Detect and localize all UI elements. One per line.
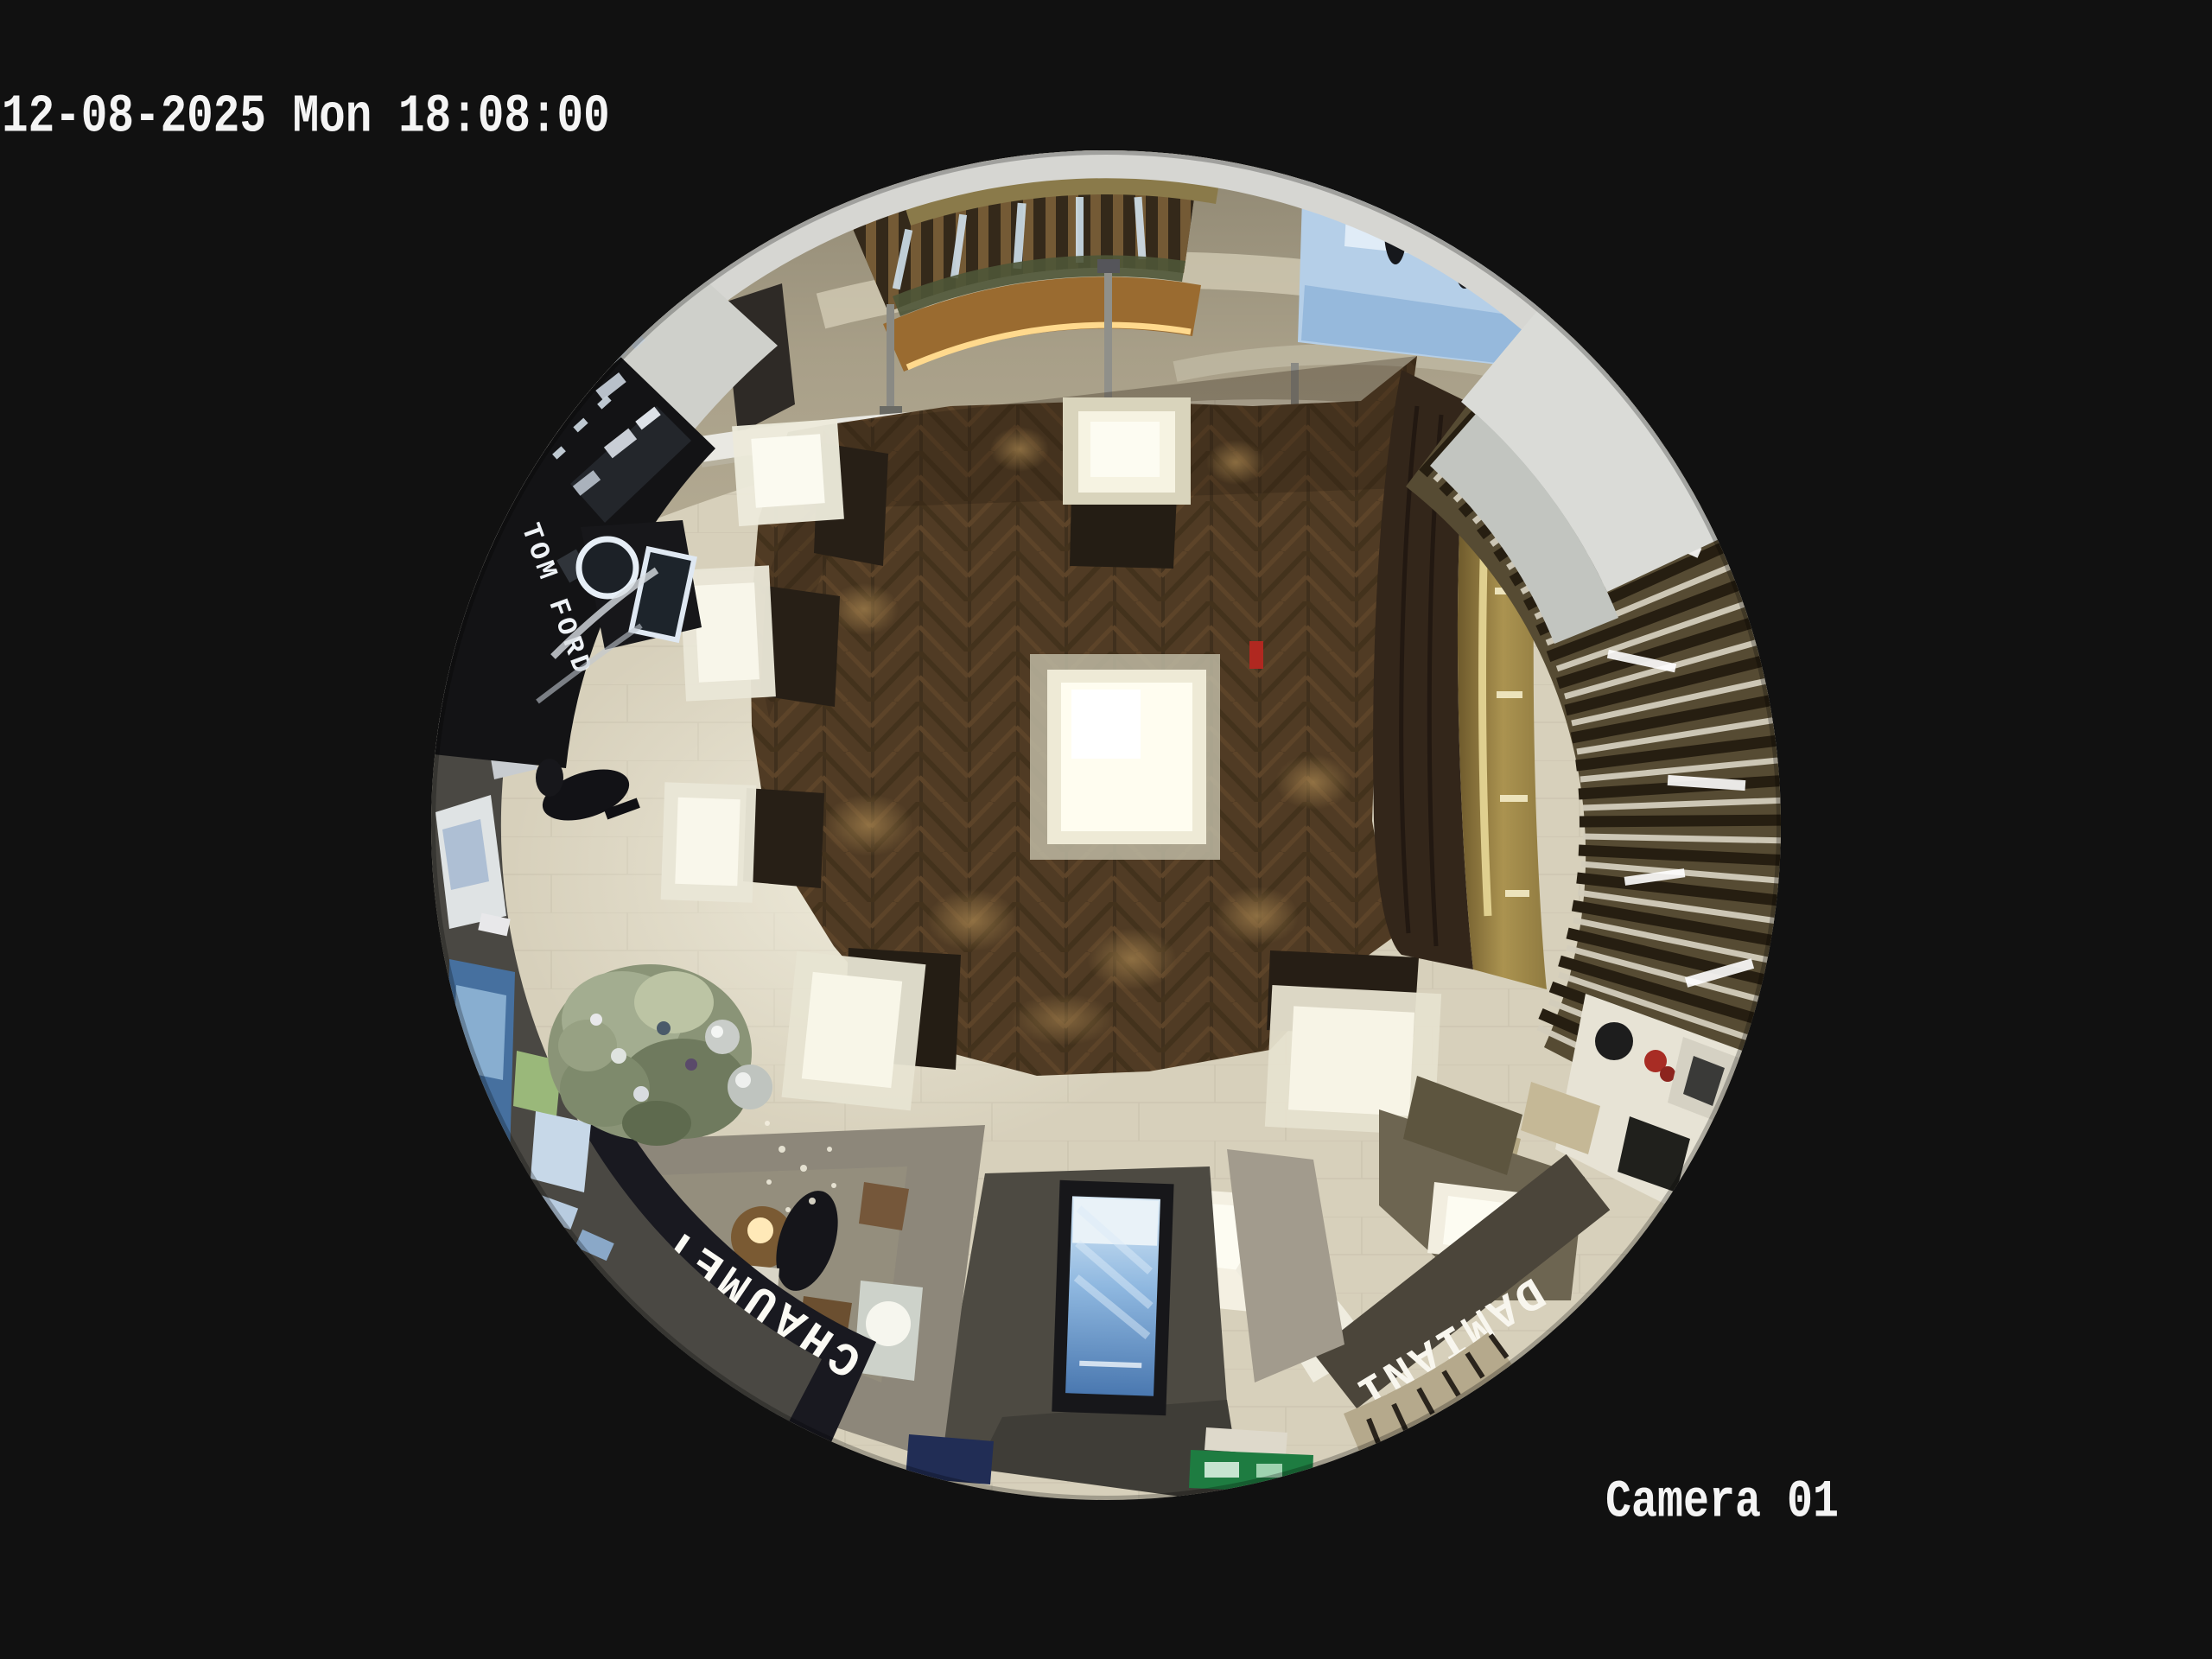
svg-text:12-08-2025 Mon 18:08:00: 12-08-2025 Mon 18:08:00 [2,87,610,148]
svg-text:Camera 01: Camera 01 [1605,1472,1839,1532]
